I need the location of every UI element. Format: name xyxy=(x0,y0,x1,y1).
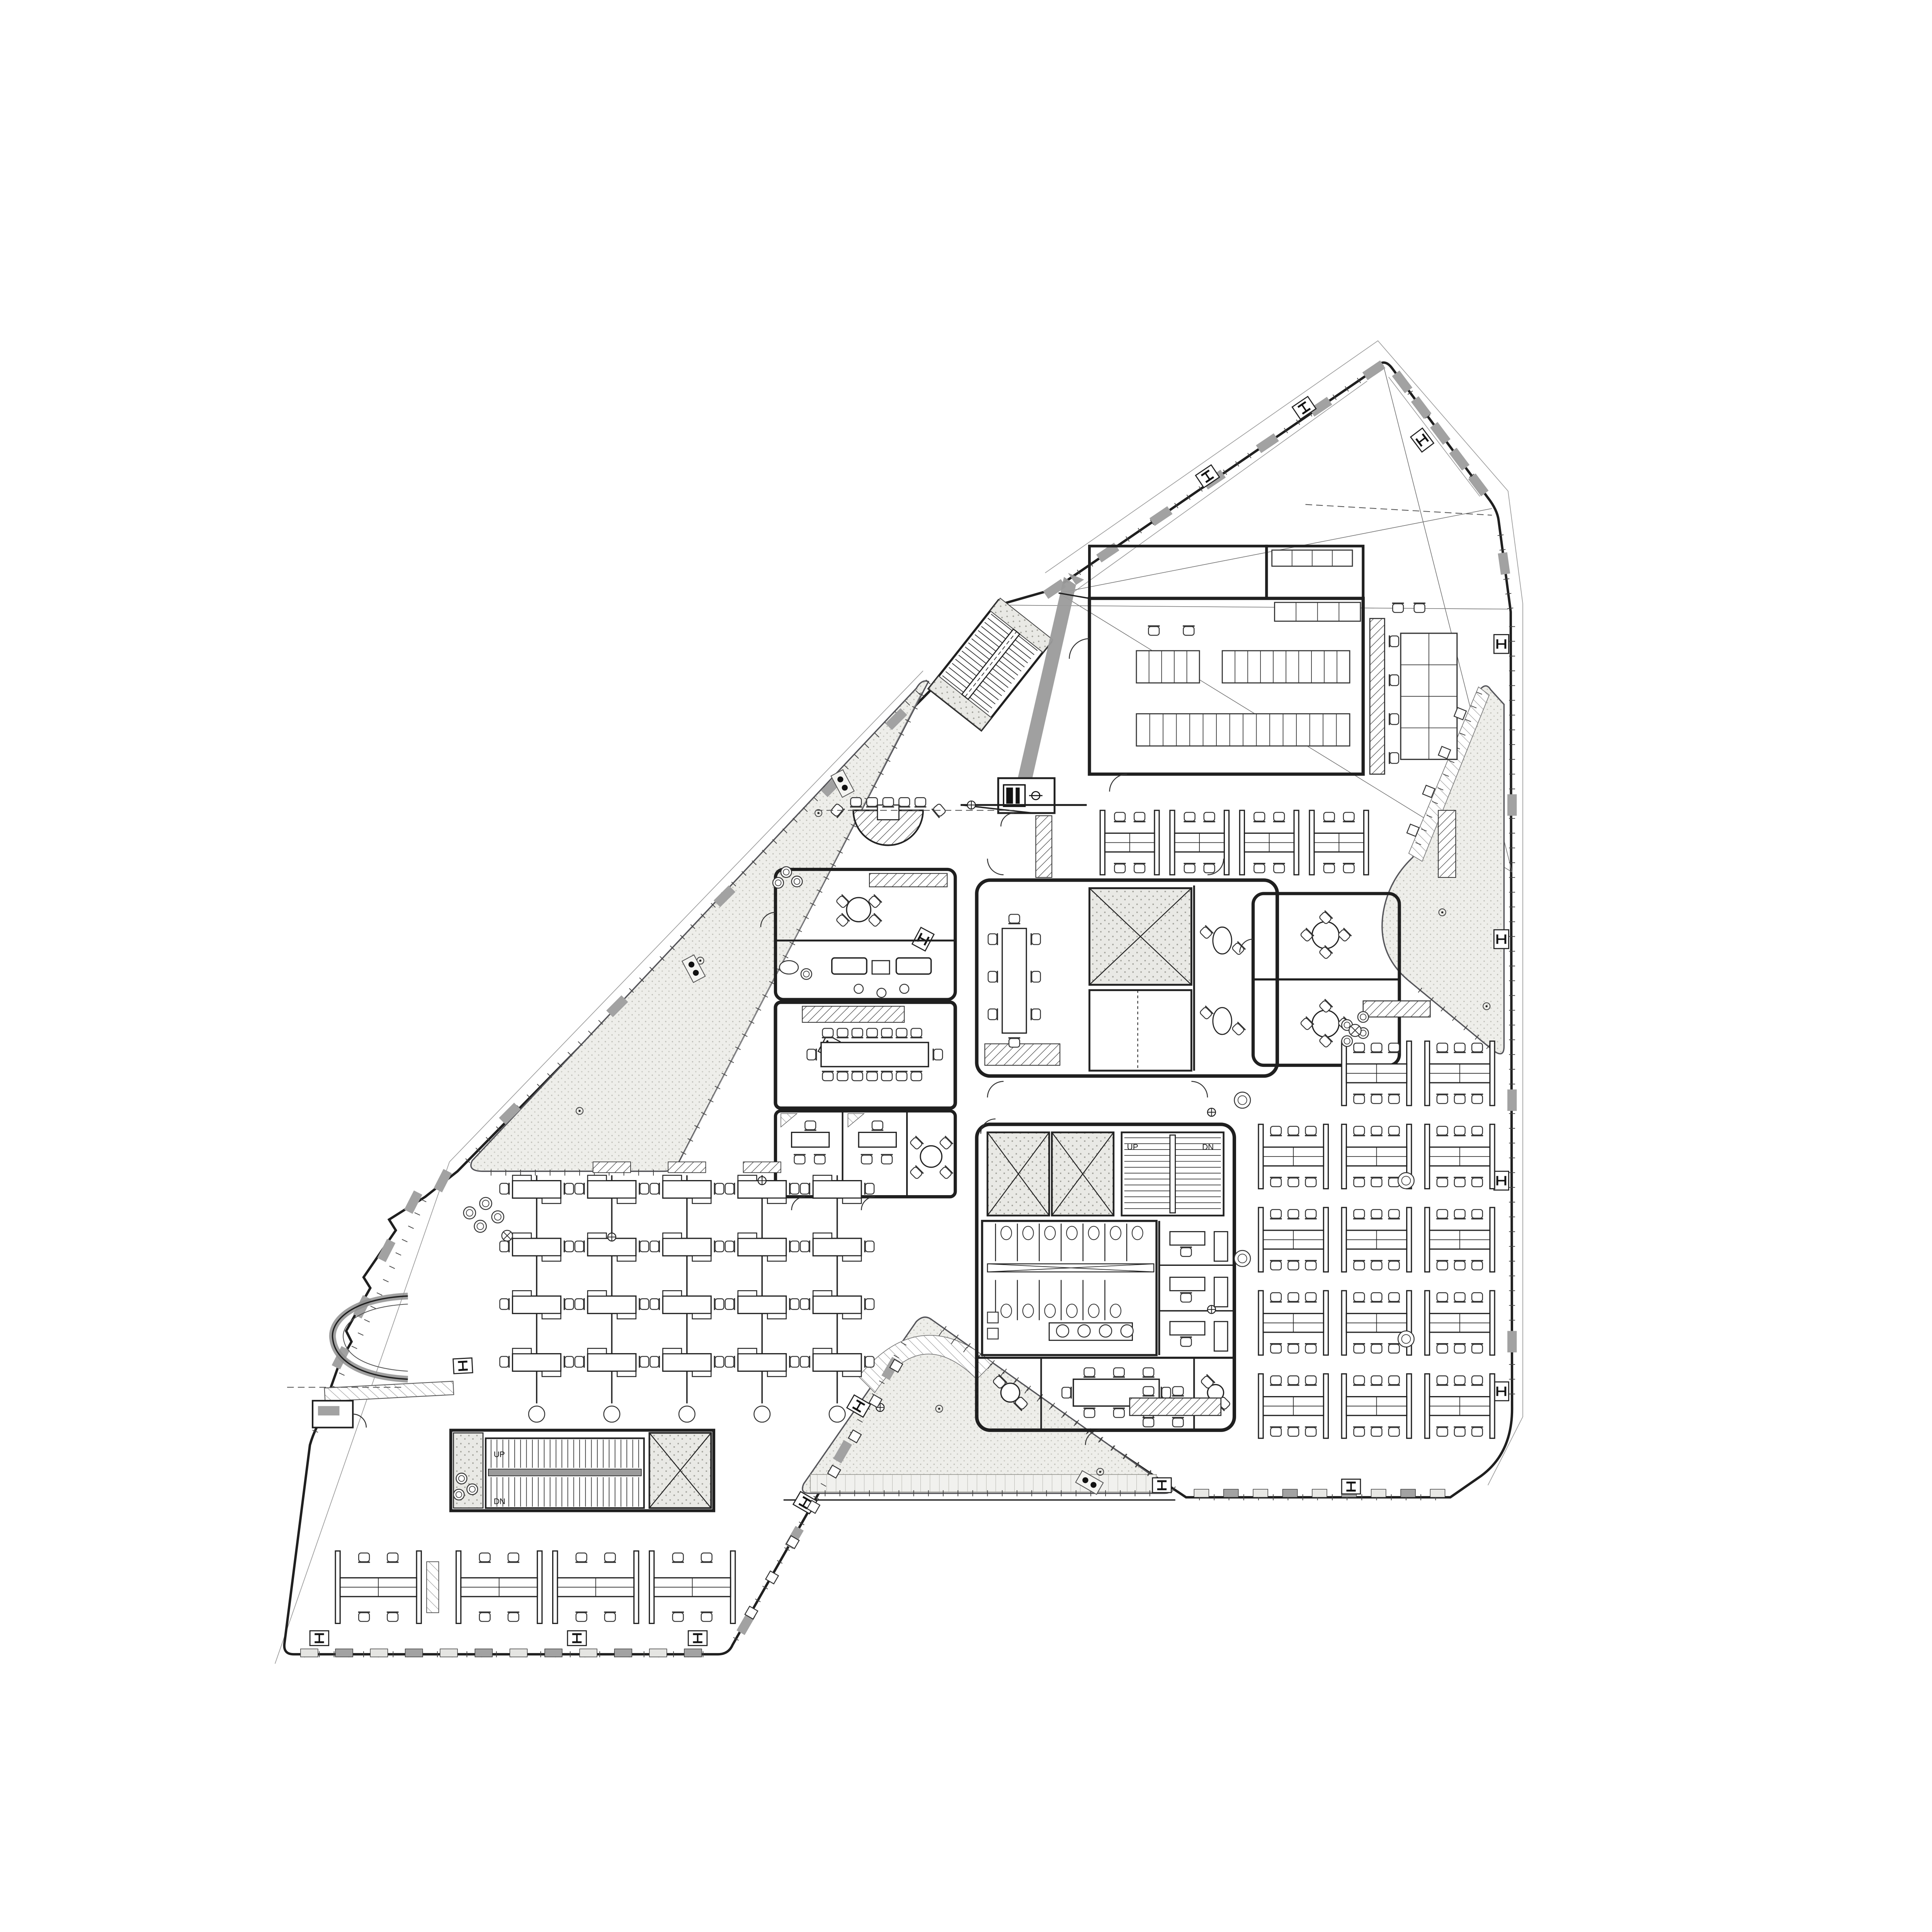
chair xyxy=(1134,864,1146,873)
chair xyxy=(837,1071,849,1081)
desk-cluster-north xyxy=(1310,810,1369,875)
column-marker xyxy=(1494,634,1509,653)
column-marker xyxy=(1494,1171,1509,1190)
chair xyxy=(1371,1344,1383,1353)
chair xyxy=(564,1183,573,1195)
chair xyxy=(1270,1177,1282,1187)
storage-hatch xyxy=(1036,816,1052,878)
desk-cluster-east xyxy=(1342,1374,1412,1439)
chair xyxy=(1270,1209,1282,1219)
chair xyxy=(1471,1126,1483,1136)
chair xyxy=(866,1071,878,1081)
desk-cluster-east xyxy=(1259,1374,1328,1439)
chair xyxy=(1353,1376,1365,1385)
chair xyxy=(1389,752,1399,764)
chair xyxy=(1270,1293,1282,1302)
chair xyxy=(822,1071,834,1081)
chair xyxy=(1454,1177,1466,1187)
chair xyxy=(1143,1418,1155,1427)
chair xyxy=(1270,1261,1282,1270)
chair xyxy=(1203,812,1215,821)
chair xyxy=(1287,1261,1299,1270)
chair xyxy=(1180,1247,1192,1257)
chair xyxy=(639,1183,649,1195)
chair xyxy=(988,1009,997,1020)
chair xyxy=(1353,1209,1365,1219)
chair xyxy=(909,1166,923,1180)
locker-hatch xyxy=(1438,810,1456,878)
chair xyxy=(1305,1344,1317,1353)
chair xyxy=(1353,1344,1365,1353)
standing-table xyxy=(1130,1398,1221,1415)
chair xyxy=(1454,1126,1466,1136)
chair xyxy=(650,1356,659,1368)
chair xyxy=(1371,1376,1383,1385)
south-stair-core: UP DN xyxy=(451,1430,714,1510)
chair xyxy=(1454,1094,1466,1104)
chair xyxy=(882,798,894,807)
chair xyxy=(1009,1038,1020,1047)
chair xyxy=(1184,812,1196,821)
chair xyxy=(358,1553,370,1562)
chair xyxy=(1305,1261,1317,1270)
chair xyxy=(1388,1126,1400,1136)
chair xyxy=(800,1298,810,1310)
chair xyxy=(1371,1293,1383,1302)
chair xyxy=(896,1028,908,1037)
chair xyxy=(822,1028,834,1037)
chair xyxy=(1300,1017,1314,1031)
chair xyxy=(1162,1387,1171,1399)
chair xyxy=(564,1356,573,1368)
chair xyxy=(1436,1043,1448,1053)
chair xyxy=(1270,1344,1282,1353)
desk-cluster-south xyxy=(335,1551,421,1623)
column-marker xyxy=(1196,465,1219,488)
chair xyxy=(1353,1043,1365,1053)
desk-cluster-south xyxy=(456,1551,542,1623)
desk-cluster-east xyxy=(1425,1207,1495,1272)
feature-stair xyxy=(929,573,1084,813)
column-marker xyxy=(568,1631,587,1645)
chair xyxy=(1392,603,1404,612)
chair xyxy=(1436,1261,1448,1270)
chair xyxy=(358,1612,370,1621)
chair xyxy=(1143,1387,1155,1396)
desk-bench-column xyxy=(500,1175,573,1422)
chair xyxy=(500,1240,509,1252)
chair xyxy=(564,1298,573,1310)
desk-cluster-east xyxy=(1259,1124,1328,1189)
terraces xyxy=(471,681,1504,1500)
stair-dn-label: DN xyxy=(494,1497,505,1506)
chair xyxy=(866,1028,878,1037)
chair xyxy=(1062,1387,1071,1399)
chair xyxy=(1287,1293,1299,1302)
chair xyxy=(701,1612,713,1621)
core-lower-stair-restrooms: UP DN xyxy=(977,1124,1235,1430)
chair xyxy=(1454,1344,1466,1353)
chair xyxy=(850,798,862,807)
chair xyxy=(507,1612,519,1621)
chair xyxy=(650,1298,659,1310)
chair xyxy=(1454,1376,1466,1385)
chair xyxy=(1273,864,1285,873)
chair xyxy=(1471,1177,1483,1187)
chair xyxy=(790,1298,799,1310)
chair xyxy=(865,1240,874,1252)
canteen-hall xyxy=(961,546,1457,813)
chair xyxy=(1114,864,1126,873)
chair xyxy=(1305,1209,1317,1219)
chair xyxy=(1371,1261,1383,1270)
chair xyxy=(1436,1293,1448,1302)
chair xyxy=(1388,1043,1400,1053)
desk-bench-column xyxy=(575,1175,649,1422)
chair xyxy=(1287,1177,1299,1187)
desk-cluster-north xyxy=(1100,810,1159,875)
chair xyxy=(814,1155,826,1164)
desk-cluster-east xyxy=(1342,1207,1412,1272)
chair xyxy=(714,1356,724,1368)
chair xyxy=(1172,1418,1184,1427)
chair xyxy=(575,1356,584,1368)
chair xyxy=(1300,928,1314,942)
chair xyxy=(1353,1427,1365,1436)
chair xyxy=(1436,1344,1448,1353)
chair xyxy=(1114,812,1126,821)
chair xyxy=(575,1240,584,1252)
chair xyxy=(1371,1177,1383,1187)
column-marker xyxy=(688,1631,707,1645)
chair xyxy=(387,1553,399,1562)
chair xyxy=(851,1071,863,1081)
chair xyxy=(639,1298,649,1310)
chair xyxy=(1172,1387,1184,1396)
chair xyxy=(1471,1094,1483,1104)
chair xyxy=(790,1183,799,1195)
chair xyxy=(1388,1293,1400,1302)
chair xyxy=(1471,1043,1483,1053)
chair xyxy=(1305,1293,1317,1302)
desk-cluster-east xyxy=(1425,1374,1495,1439)
chair xyxy=(1371,1043,1383,1053)
chair xyxy=(1231,1022,1245,1036)
chair xyxy=(1413,603,1425,612)
desk-cluster-east xyxy=(1425,1291,1495,1355)
chair xyxy=(865,1298,874,1310)
desk-bench-column xyxy=(800,1175,874,1422)
chair xyxy=(881,1028,893,1037)
chair xyxy=(1471,1293,1483,1302)
chair xyxy=(861,1155,873,1164)
chair xyxy=(1436,1427,1448,1436)
chair xyxy=(1305,1376,1317,1385)
chair xyxy=(1388,1209,1400,1219)
chair xyxy=(1031,933,1041,945)
chair xyxy=(865,1183,874,1195)
chair xyxy=(564,1240,573,1252)
servery-counter xyxy=(1370,619,1384,774)
chair xyxy=(881,1071,893,1081)
chair xyxy=(1454,1293,1466,1302)
chair xyxy=(1353,1293,1365,1302)
chair xyxy=(1253,864,1265,873)
chair xyxy=(672,1612,684,1621)
chair xyxy=(1436,1126,1448,1136)
chair xyxy=(1343,864,1355,873)
chair xyxy=(1454,1043,1466,1053)
column-marker xyxy=(1153,1478,1172,1493)
chair xyxy=(1270,1126,1282,1136)
chair xyxy=(837,1028,849,1037)
chair xyxy=(714,1298,724,1310)
chair xyxy=(1253,812,1265,821)
chair xyxy=(1305,1427,1317,1436)
chair xyxy=(1305,1126,1317,1136)
chair xyxy=(1323,864,1335,873)
chair xyxy=(1148,626,1160,635)
chair xyxy=(1454,1209,1466,1219)
chair xyxy=(896,1071,908,1081)
chair xyxy=(725,1240,735,1252)
chair xyxy=(1471,1261,1483,1270)
chair xyxy=(1471,1427,1483,1436)
chair xyxy=(1183,626,1195,635)
chair xyxy=(790,1356,799,1368)
chair xyxy=(909,1136,923,1150)
chair xyxy=(1371,1427,1383,1436)
chair xyxy=(1270,1427,1282,1436)
chair xyxy=(725,1298,735,1310)
chair xyxy=(1343,812,1355,821)
chair xyxy=(650,1240,659,1252)
chair xyxy=(1180,1293,1192,1302)
chair xyxy=(1273,812,1285,821)
chair xyxy=(800,1240,810,1252)
chair xyxy=(701,1553,713,1562)
chair xyxy=(1471,1376,1483,1385)
chair xyxy=(575,1298,584,1310)
chair xyxy=(500,1183,509,1195)
chair xyxy=(1388,1261,1400,1270)
desk-cluster-south xyxy=(650,1551,735,1623)
chair xyxy=(939,1136,953,1150)
chair xyxy=(910,1028,922,1037)
chair xyxy=(725,1183,735,1195)
chair xyxy=(865,1356,874,1368)
chair xyxy=(1353,1094,1365,1104)
terrace-south-paving-band xyxy=(810,1475,1156,1492)
chair xyxy=(1436,1376,1448,1385)
column-marker xyxy=(1494,930,1509,949)
chair xyxy=(1323,812,1335,821)
desk-cluster-north xyxy=(1170,810,1229,875)
chair xyxy=(1184,864,1196,873)
desk-cluster-east xyxy=(1425,1124,1495,1189)
chair xyxy=(1337,928,1352,942)
terrace-west xyxy=(471,681,929,1171)
chair xyxy=(872,1121,884,1130)
chair xyxy=(881,1155,893,1164)
chair xyxy=(800,1183,810,1195)
chair xyxy=(1305,1177,1317,1187)
chair xyxy=(866,798,878,807)
chair xyxy=(575,1183,584,1195)
chair xyxy=(939,1166,953,1180)
chair xyxy=(790,1240,799,1252)
chair xyxy=(1143,1368,1155,1377)
chair xyxy=(1287,1376,1299,1385)
chair xyxy=(1388,1427,1400,1436)
chair xyxy=(933,1049,942,1061)
chair xyxy=(714,1183,724,1195)
chair xyxy=(1287,1126,1299,1136)
chair xyxy=(1134,812,1146,821)
chair xyxy=(714,1240,724,1252)
desk-bench-column xyxy=(650,1175,724,1422)
chair xyxy=(851,1028,863,1037)
chair xyxy=(800,1356,810,1368)
chair xyxy=(910,1071,922,1081)
chair xyxy=(988,933,997,945)
stair-dn-label: DN xyxy=(1202,1143,1214,1152)
desk-bench-column xyxy=(725,1175,799,1422)
column-marker xyxy=(310,1631,329,1645)
chair xyxy=(804,1121,816,1130)
chair xyxy=(1471,1209,1483,1219)
chair xyxy=(479,1612,491,1621)
chair xyxy=(1031,1009,1041,1020)
chair xyxy=(1287,1344,1299,1353)
chair xyxy=(639,1240,649,1252)
column-marker xyxy=(453,1358,473,1374)
chair xyxy=(1436,1177,1448,1187)
chair xyxy=(387,1612,399,1621)
chair xyxy=(1199,1006,1213,1020)
chair xyxy=(1353,1126,1365,1136)
chair xyxy=(1454,1261,1466,1270)
chair xyxy=(1389,674,1399,686)
chair xyxy=(794,1155,806,1164)
chair xyxy=(1388,1376,1400,1385)
chair xyxy=(915,798,927,807)
chair xyxy=(479,1553,491,1562)
chair xyxy=(1371,1094,1383,1104)
chair xyxy=(1436,1209,1448,1219)
chair xyxy=(604,1612,616,1621)
chair xyxy=(604,1553,616,1562)
column-marker xyxy=(1342,1479,1361,1494)
chair xyxy=(1083,1368,1095,1377)
chair xyxy=(1388,1094,1400,1104)
chair xyxy=(1287,1427,1299,1436)
stair-up-label: UP xyxy=(494,1450,505,1459)
chair xyxy=(500,1356,509,1368)
column-marker xyxy=(1494,1382,1509,1401)
chair xyxy=(639,1356,649,1368)
chair xyxy=(988,971,997,983)
desk-cluster-east xyxy=(1425,1041,1495,1105)
chair xyxy=(1270,1376,1282,1385)
chair xyxy=(1389,635,1399,647)
chair xyxy=(1009,914,1020,923)
chair xyxy=(1389,713,1399,725)
chair xyxy=(1388,1344,1400,1353)
desk-cluster-east xyxy=(1259,1291,1328,1355)
chair xyxy=(1371,1209,1383,1219)
chair xyxy=(507,1553,519,1562)
chair xyxy=(1113,1368,1125,1377)
chair xyxy=(575,1612,587,1621)
chair xyxy=(1371,1126,1383,1136)
chair xyxy=(898,798,910,807)
chair xyxy=(1454,1427,1466,1436)
chair xyxy=(1203,864,1215,873)
chair xyxy=(650,1183,659,1195)
chair xyxy=(672,1553,684,1562)
column-marker xyxy=(1292,396,1316,419)
bridge-gray-band xyxy=(1012,577,1076,810)
column-marker xyxy=(912,927,934,951)
chair xyxy=(500,1298,509,1310)
chair xyxy=(1471,1344,1483,1353)
desk-cluster-south xyxy=(553,1551,639,1623)
desk-cluster-north xyxy=(1240,810,1299,875)
chair xyxy=(1031,971,1041,983)
floor-plan-sheet: UP DN xyxy=(0,0,1932,1932)
chair xyxy=(1180,1337,1192,1346)
chair xyxy=(1287,1209,1299,1219)
chair xyxy=(1113,1408,1125,1417)
chair xyxy=(807,1049,816,1061)
chair xyxy=(1353,1177,1365,1187)
chair xyxy=(1353,1261,1365,1270)
chair xyxy=(1083,1408,1095,1417)
chair xyxy=(1199,925,1213,940)
chair xyxy=(1436,1094,1448,1104)
stair-up-label: UP xyxy=(1127,1143,1138,1152)
chair xyxy=(575,1553,587,1562)
floor-plan-drawing: UP DN xyxy=(0,0,1932,1932)
desk-cluster-east xyxy=(1259,1207,1328,1272)
chair xyxy=(725,1356,735,1368)
desk-cluster-east xyxy=(1342,1041,1412,1105)
